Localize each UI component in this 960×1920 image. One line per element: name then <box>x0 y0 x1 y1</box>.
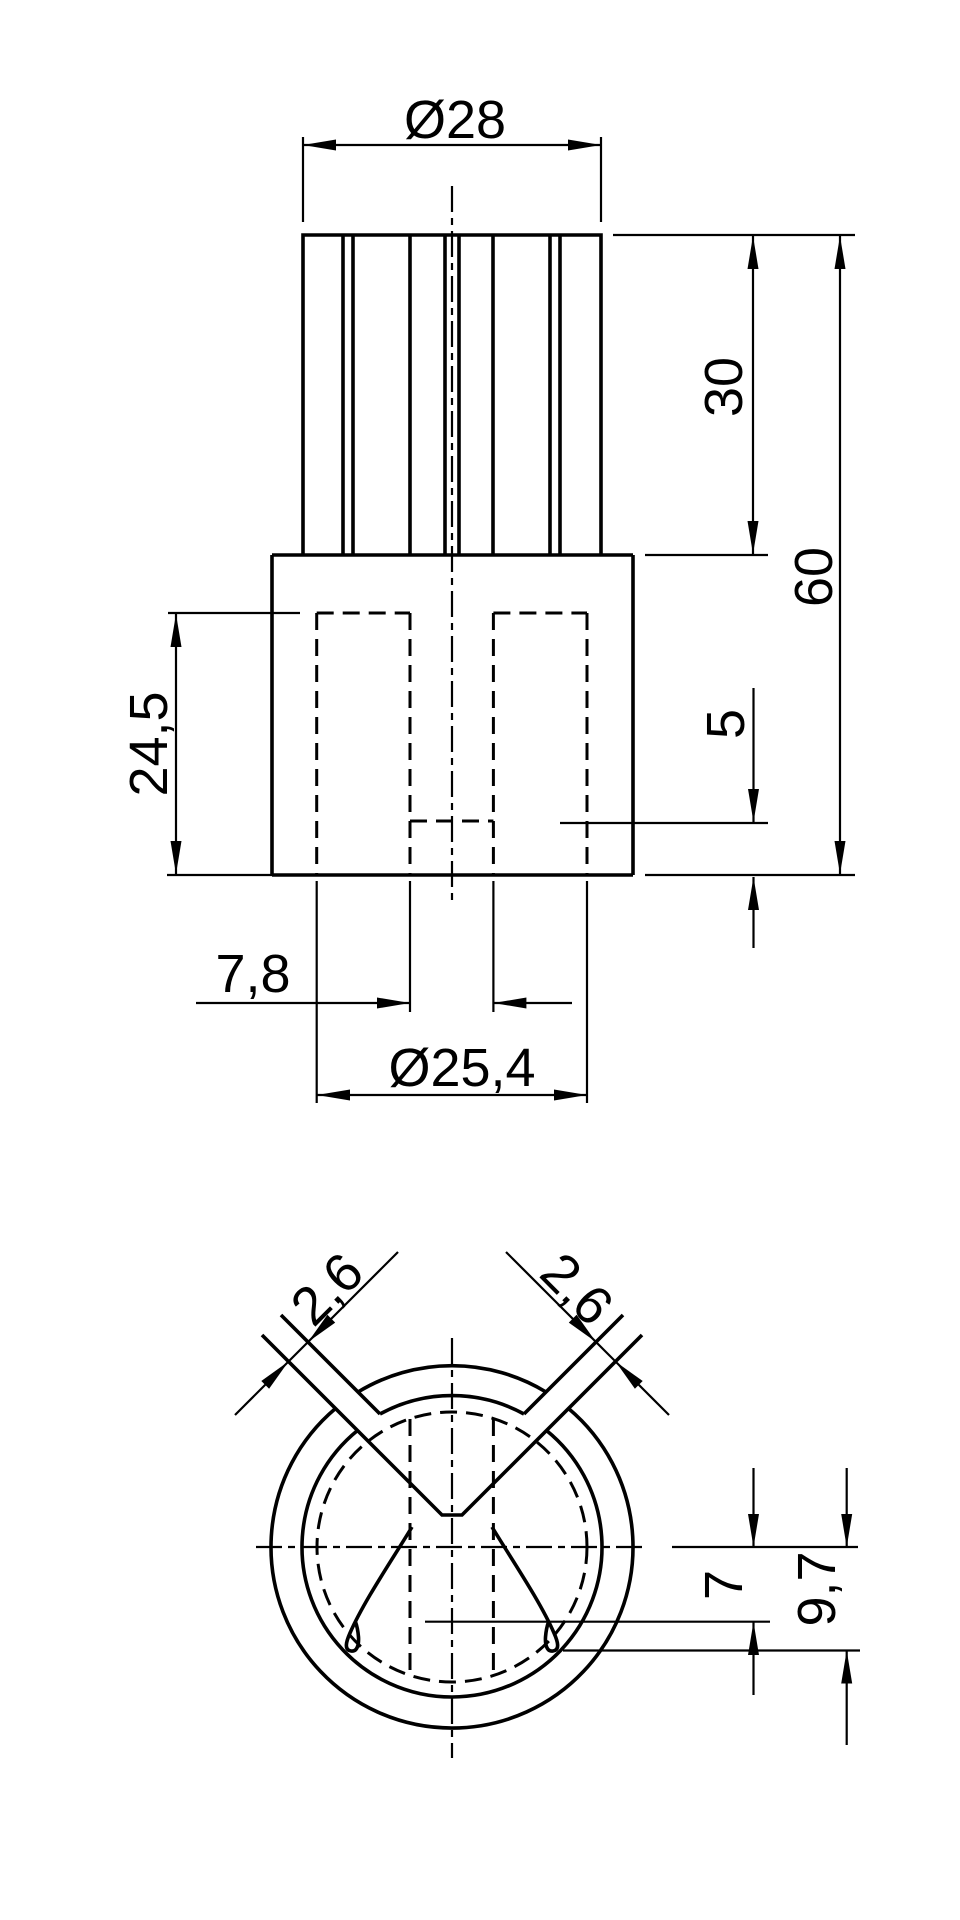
dim-30-label: 30 <box>694 357 754 417</box>
dim-5: 5 <box>560 688 768 948</box>
dim-2-6-right-label: 2,6 <box>529 1242 625 1338</box>
dim-30: 30 <box>613 235 855 555</box>
dim-7-8-label: 7,8 <box>215 944 290 1004</box>
dim-60-label: 60 <box>784 547 844 607</box>
dim-9-7-label: 9,7 <box>787 1551 847 1626</box>
dim-7-label: 7 <box>694 1570 754 1600</box>
dim-7-8: 7,8 <box>196 881 572 1012</box>
dim-9-7: 9,7 <box>787 1468 852 1745</box>
front-view: Ø28 30 60 24,5 <box>119 90 855 1103</box>
bottom-view: 2,6 2,6 7 9,7 <box>235 1242 860 1758</box>
dim-dia25-4-label: Ø25,4 <box>388 1038 535 1098</box>
dim-5-label: 5 <box>696 709 756 739</box>
dim-dia28-label: Ø28 <box>404 90 506 150</box>
dim-2-6-left-label: 2,6 <box>280 1242 376 1338</box>
technical-drawing: Ø28 30 60 24,5 <box>0 0 960 1920</box>
dim-dia25-4: Ø25,4 <box>317 881 587 1103</box>
dim-7: 7 <box>694 1468 759 1695</box>
dim-24-5-label: 24,5 <box>119 691 179 796</box>
